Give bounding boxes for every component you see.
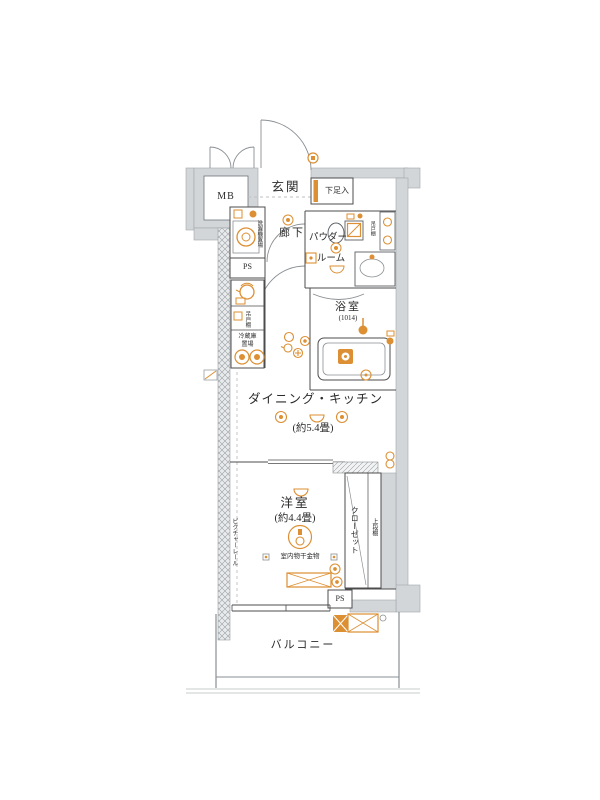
switch-icons bbox=[330, 564, 342, 587]
label-upper-shelf: 上段棚 bbox=[370, 506, 377, 548]
room-label-closet: クローゼット bbox=[350, 484, 359, 576]
powder-sconce-icon bbox=[330, 266, 344, 273]
wall-below-ps bbox=[350, 600, 396, 612]
balcony-drain-icon bbox=[380, 615, 386, 621]
room-label-bathroom: 浴室 bbox=[325, 301, 371, 314]
dk-sconce-icon bbox=[310, 415, 324, 422]
entrance-door-arc bbox=[261, 120, 311, 170]
ac-outdoor-unit-icon bbox=[333, 614, 386, 632]
label-hanging-cupboard-kitchen: 吊戸棚 bbox=[244, 307, 250, 331]
label-shoe-cabinet: 下足入 bbox=[320, 186, 354, 195]
window-sash-ticks bbox=[232, 605, 330, 611]
mb-door-right bbox=[233, 147, 254, 168]
ceiling-light-icon bbox=[289, 526, 312, 549]
bathtub-icon bbox=[318, 338, 390, 380]
room-label-powder-2: ルーム bbox=[311, 254, 351, 265]
sliding-door-rails bbox=[268, 460, 333, 464]
label-picture-rail: ピクチャーレール bbox=[230, 502, 237, 582]
label-dining-kitchen-size: (約5.4畳) bbox=[248, 423, 378, 435]
label-ps-upper: PS bbox=[230, 262, 265, 271]
wall-left-top bbox=[186, 168, 194, 230]
balcony-window-sash bbox=[232, 605, 330, 611]
wall-outlet-icons bbox=[386, 452, 394, 468]
wall-right-bottom-step bbox=[396, 585, 420, 612]
bathroom-door-curve bbox=[313, 294, 364, 300]
label-washing-machine: 洗濯機置場 bbox=[256, 210, 262, 258]
hatched-concrete-wall-left bbox=[218, 228, 230, 640]
building-edge-lines bbox=[186, 689, 420, 693]
label-fridge-1: 冷蔵庫 bbox=[231, 334, 264, 341]
label-bathroom-size: (1014) bbox=[325, 314, 371, 322]
doorbell-icon bbox=[308, 153, 318, 163]
vanity-sink-icon bbox=[355, 252, 395, 286]
room-label-hallway: 廊下 bbox=[274, 227, 310, 240]
shoe-cabinet-door-icon bbox=[314, 180, 319, 202]
water-heater-icons bbox=[281, 333, 310, 358]
label-fridge-2: 置場 bbox=[231, 342, 264, 349]
room-label-dining-kitchen: ダイニング・キッチン bbox=[248, 392, 378, 406]
label-hanging-cupboard-powder: 吊戸棚 bbox=[369, 216, 375, 240]
mb-door-left bbox=[210, 147, 231, 168]
bedroom-sconce-icon bbox=[294, 489, 308, 496]
drying-bar-icon bbox=[287, 573, 331, 587]
label-indoor-drying: 室内物干金物 bbox=[270, 553, 330, 560]
wall-top-right bbox=[311, 168, 408, 178]
room-label-western-room: 洋室 bbox=[250, 496, 340, 510]
floorplan-page: MB 玄関 下足入 廊下 パウダー ルーム 浴室 (1014) 洗濯機置場 PS… bbox=[0, 0, 600, 800]
overhead-shelf-hatch bbox=[333, 462, 378, 473]
powder-downlight-icon bbox=[331, 243, 341, 253]
dk-door-arc bbox=[259, 266, 305, 312]
room-label-balcony: バルコニー bbox=[263, 639, 343, 652]
room-label-entrance: 玄関 bbox=[258, 180, 314, 194]
room-label-mb: MB bbox=[204, 191, 248, 203]
wall-right bbox=[396, 178, 408, 602]
wall-right-of-closet bbox=[381, 473, 396, 589]
hallway-downlight-icon bbox=[283, 215, 293, 225]
powder-storage-icon bbox=[380, 212, 395, 250]
wall-below-mb bbox=[194, 228, 220, 240]
label-western-room-size: (約4.4畳) bbox=[250, 513, 340, 525]
room-label-powder-1: パウダー bbox=[306, 233, 350, 244]
label-ps-lower: PS bbox=[328, 594, 352, 603]
bath-faucet-icon bbox=[387, 331, 395, 345]
